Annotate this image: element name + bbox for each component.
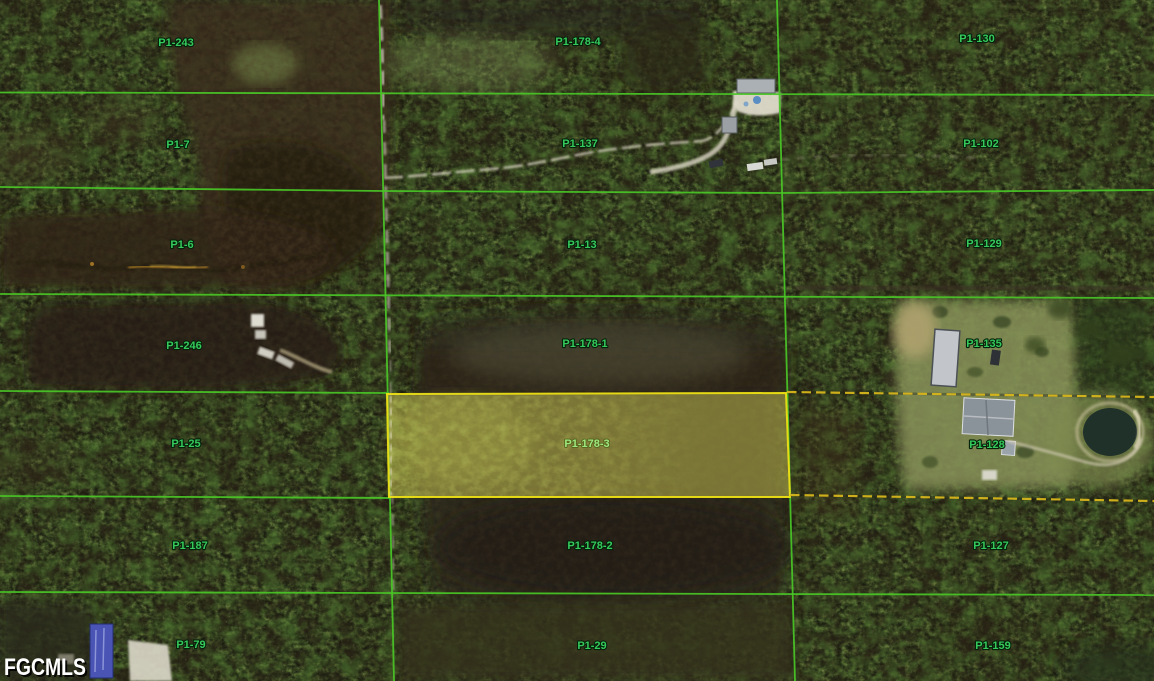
svg-text:P1-159: P1-159 bbox=[975, 640, 1010, 652]
svg-text:P1-102: P1-102 bbox=[963, 138, 998, 150]
svg-text:P1-128: P1-128 bbox=[969, 439, 1004, 451]
svg-text:P1-127: P1-127 bbox=[973, 540, 1008, 552]
svg-text:P1-243: P1-243 bbox=[158, 37, 193, 49]
svg-text:P1-178-1: P1-178-1 bbox=[562, 338, 607, 350]
svg-text:P1-29: P1-29 bbox=[577, 640, 606, 652]
svg-text:FGCMLS: FGCMLS bbox=[4, 654, 86, 681]
svg-text:P1-13: P1-13 bbox=[567, 239, 596, 251]
svg-text:P1-178-4: P1-178-4 bbox=[555, 36, 601, 48]
svg-text:P1-129: P1-129 bbox=[966, 238, 1001, 250]
svg-text:P1-79: P1-79 bbox=[176, 639, 205, 651]
svg-text:P1-178-2: P1-178-2 bbox=[567, 540, 612, 552]
svg-text:P1-137: P1-137 bbox=[562, 138, 597, 150]
svg-text:P1-246: P1-246 bbox=[166, 340, 201, 352]
svg-text:P1-135: P1-135 bbox=[966, 338, 1001, 350]
svg-text:P1-25: P1-25 bbox=[171, 438, 200, 450]
svg-text:P1-6: P1-6 bbox=[170, 239, 193, 251]
svg-text:P1-187: P1-187 bbox=[172, 540, 207, 552]
svg-text:P1-130: P1-130 bbox=[959, 33, 994, 45]
svg-text:P1-7: P1-7 bbox=[166, 139, 189, 151]
svg-text:P1-178-3: P1-178-3 bbox=[564, 438, 609, 450]
